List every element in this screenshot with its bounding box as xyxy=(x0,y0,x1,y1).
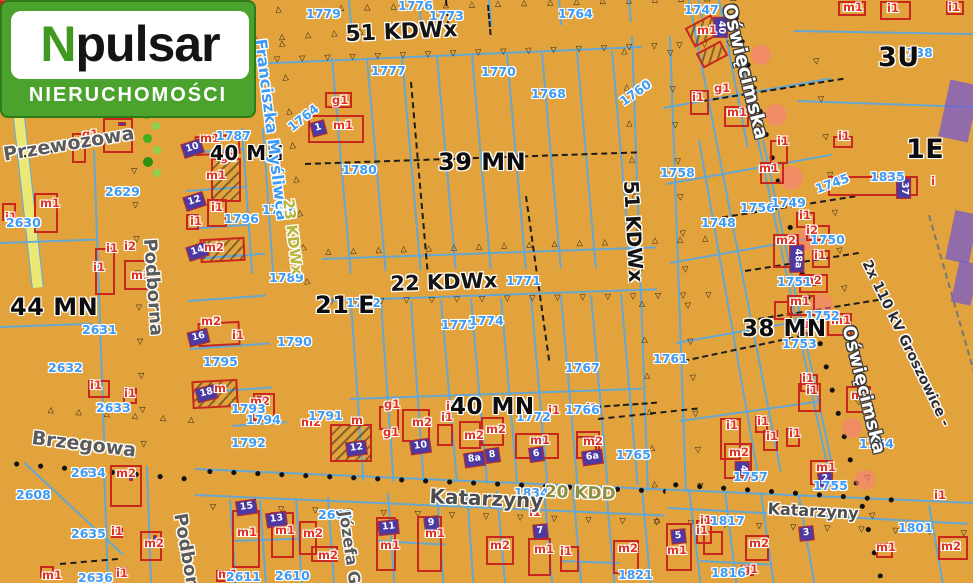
parcel-number-label: 2630 xyxy=(6,217,41,230)
building-type-label: i1 xyxy=(934,490,946,502)
parcel-number-label: 1768 xyxy=(531,88,566,101)
building-type-label: m2 xyxy=(583,436,603,448)
tree-icon xyxy=(143,157,153,167)
parcel-number-label: 1747 xyxy=(684,4,719,17)
building-type-label: i1 xyxy=(838,131,850,143)
building-type-label: m2 xyxy=(201,316,221,328)
house-number-chip: 8 xyxy=(484,447,501,464)
parcel-number-label: 2632 xyxy=(48,362,83,375)
street-name-label: Podborna xyxy=(170,512,205,583)
parcel-number-label: 1821 xyxy=(618,569,653,582)
parcel-number-label: 1751 xyxy=(777,276,812,289)
zone-dashed-line xyxy=(60,558,118,565)
building-type-label: i1 xyxy=(948,2,960,14)
tree-icon xyxy=(152,122,160,130)
building-type-label: m1 xyxy=(425,528,445,540)
zone-label: 40 MN xyxy=(450,396,535,419)
building-type-label: m2 xyxy=(303,528,323,540)
parcel-number-label: 1816 xyxy=(711,567,746,580)
parcel-number-label: 2633 xyxy=(96,402,131,415)
tree-icon xyxy=(143,134,152,143)
building-type-label: g1 xyxy=(384,399,400,411)
building-type-label: m1 xyxy=(697,25,717,37)
parcel-number-label: 2634 xyxy=(71,467,106,480)
building-type-label: g1 xyxy=(714,83,730,95)
building-type-label: m1 xyxy=(275,525,295,537)
logo-wordmark: Npulsar xyxy=(11,11,249,79)
building-type-label: m xyxy=(214,383,226,395)
street-name-label: 51 KDWx xyxy=(621,180,646,283)
parcel-number-label: 2635 xyxy=(71,528,106,541)
parcel-number-label: 1756 xyxy=(740,202,775,215)
parcel-number-label: 2611 xyxy=(226,571,261,583)
building-type-label: m2 xyxy=(729,447,749,459)
zone-label: 39 MN xyxy=(438,150,526,174)
parcel-number-label: 1764 xyxy=(558,8,593,21)
parcel-boundary-line xyxy=(794,30,973,35)
parcel-number-label: 1790 xyxy=(277,336,312,349)
house-number-chip: 8a xyxy=(463,451,486,469)
building-type-label: m1 xyxy=(816,462,836,474)
parcel-boundary-line xyxy=(0,323,92,328)
building-type-label: m1 xyxy=(759,163,779,175)
parcel-boundary-line xyxy=(380,302,394,482)
building-outline xyxy=(232,510,260,568)
building-type-label: m1 xyxy=(843,2,863,14)
building-type-label: m2 xyxy=(749,538,769,550)
building-type-label: m1 xyxy=(206,170,226,182)
building-type-label: m2 xyxy=(144,538,164,550)
street-name-label: Józefa Gr xyxy=(336,510,363,583)
building-type-label: i1 xyxy=(116,568,128,580)
parcel-number-label: 1748 xyxy=(701,217,736,230)
parcel-number-label: 1774 xyxy=(469,315,504,328)
parcel-number-label: 1776 xyxy=(398,0,433,13)
zone-label: 44 MN xyxy=(10,295,98,319)
house-number-chip: 6 xyxy=(528,446,545,463)
house-number-chip: 48a xyxy=(789,245,804,273)
building-type-label: i1 xyxy=(726,420,738,432)
building-type-label: i1 xyxy=(789,428,801,440)
building-type-label: i1 xyxy=(806,385,818,397)
parcel-number-label: 1779 xyxy=(306,8,341,21)
building-type-label: i1 xyxy=(757,416,769,428)
parcel-number-label: 1761 xyxy=(653,353,688,366)
building-type-label: i1 xyxy=(90,380,102,392)
building-type-label: m2 xyxy=(464,430,484,442)
parcel-number-label: 1780 xyxy=(342,164,377,177)
street-name-label: Brzegowa xyxy=(31,429,137,461)
parcel-number-label: 1758 xyxy=(660,167,695,180)
road-marker-dot xyxy=(842,418,862,438)
parcel-boundary-line xyxy=(146,466,152,583)
building-type-label: m2 xyxy=(490,540,510,552)
house-number-chip: 11 xyxy=(377,519,400,536)
building-type-label: i xyxy=(931,176,935,188)
house-number-chip: 7 xyxy=(532,523,548,539)
parcel-number-label: 1801 xyxy=(898,522,933,535)
building-type-label: m1 xyxy=(42,570,62,582)
building-type-label: m1 xyxy=(40,198,60,210)
building-type-label: i1 xyxy=(93,262,105,274)
logo: Npulsar NIERUCHOMOŚCI xyxy=(0,0,256,118)
parcel-number-label: 1777 xyxy=(371,65,406,78)
house-number-chip: 12 xyxy=(345,440,368,458)
building-type-label: m xyxy=(351,415,363,427)
parcel-number-label: 2636 xyxy=(78,572,113,583)
building-type-label: m1 xyxy=(790,296,810,308)
parcel-number-label: 1795 xyxy=(203,356,238,369)
zone-label: 21 E xyxy=(315,293,375,317)
building-type-label: m1 xyxy=(876,542,896,554)
building-type-label: m2 xyxy=(204,242,224,254)
parcel-number-label: 1757 xyxy=(733,471,768,484)
street-name-label: 22 KDWx xyxy=(390,270,498,295)
street-name-label: Przewozowa xyxy=(2,124,136,165)
building-type-label: m2 xyxy=(486,424,506,436)
house-number-chip: 3 xyxy=(798,525,814,541)
building-type-label: i1 xyxy=(799,210,811,222)
infrastructure-patch xyxy=(945,210,973,264)
infrastructure-patch xyxy=(951,260,973,305)
building-type-label: m1 xyxy=(667,545,687,557)
building-type-label: i1 xyxy=(111,526,123,538)
building-type-label: m2 xyxy=(941,541,961,553)
boundary-triangle-strip: ▽▽▽▽▽▽▽▽▽▽▽▽▽▽▽▽ xyxy=(328,291,731,306)
house-number-chip: 12 xyxy=(182,191,207,212)
parcel-number-label: 1796 xyxy=(224,213,259,226)
parcel-number-label: 1794 xyxy=(246,414,281,427)
zoning-map[interactable]: △△△△△△△△△△△△△△△△△△△△△△△△△△△△△△▽▽▽▽▽▽▽▽▽▽… xyxy=(0,0,973,583)
street-name-label: Katarzyny xyxy=(767,501,859,522)
parcel-number-label: 1767 xyxy=(565,362,600,375)
parcel-boundary-line xyxy=(410,301,424,483)
boundary-triangle-strip: △△△△△△ xyxy=(47,406,216,426)
building-type-label: m1 xyxy=(333,120,353,132)
parcel-number-label: 1755 xyxy=(813,480,848,493)
logo-subtitle: NIERUCHOMOŚCI xyxy=(2,84,254,107)
boundary-triangle-strip: △△△△△△△△△△△△△△△△ xyxy=(325,234,727,256)
house-number-chip: 6a xyxy=(581,449,604,467)
building-type-label: m2 xyxy=(776,235,796,247)
building-type-label: i1 xyxy=(814,250,826,262)
parcel-number-label: 2629 xyxy=(105,186,140,199)
street-name-label: Katarzyny xyxy=(429,486,544,511)
building-outline xyxy=(437,424,453,446)
zone-label: 3U xyxy=(878,44,920,71)
building-type-label: i1 xyxy=(232,330,244,342)
parcel-number-label: 1817 xyxy=(710,515,745,528)
building-type-label: i1 xyxy=(560,546,572,558)
building-type-label: m2 xyxy=(412,417,432,429)
parcel-number-label: 1766 xyxy=(565,404,600,417)
parcel-number-label: 1750 xyxy=(810,234,845,247)
building-type-label: g1 xyxy=(332,95,348,107)
building-type-label: m2 xyxy=(618,543,638,555)
building-type-label: i1 xyxy=(124,388,136,400)
road-marker-dot xyxy=(855,470,875,490)
zone-label: 1E xyxy=(906,136,944,163)
building-type-label: i1 xyxy=(887,3,899,15)
logo-letter-n: N xyxy=(40,16,75,72)
building-type-label: m1 xyxy=(237,527,257,539)
house-number-chip: 10 xyxy=(409,438,432,456)
building-type-label: i1 xyxy=(190,216,202,228)
street-name-label: 20 KDD xyxy=(544,484,616,503)
house-number-chip: 15 xyxy=(235,499,258,517)
zone-label: 38 MN xyxy=(742,318,827,341)
building-type-label: g1 xyxy=(383,427,399,439)
parcel-number-label: 1792 xyxy=(231,437,266,450)
building-type-label: m2 xyxy=(116,468,136,480)
parcel-number-label: 1791 xyxy=(308,410,343,423)
parcel-number-label: 2608 xyxy=(16,489,51,502)
building-type-label: m2 xyxy=(318,550,338,562)
building-type-label: i1 xyxy=(692,92,704,104)
building-type-label: i1 xyxy=(766,431,778,443)
street-name-label: 51 KDWx xyxy=(345,19,458,46)
parcel-number-label: 1771 xyxy=(506,275,541,288)
parcel-number-label: 2631 xyxy=(82,324,117,337)
boundary-triangle-strip: ▷▷▷▷▷▷▷▷▷▷▷▷▷▷ xyxy=(666,50,709,555)
building-type-label: m1 xyxy=(530,435,550,447)
parcel-number-label: 2610 xyxy=(275,570,310,583)
parcel-boundary-line xyxy=(0,239,95,244)
parcel-number-label: 1835 xyxy=(870,171,905,184)
tree-icon xyxy=(153,169,161,177)
building-type-label: m1 xyxy=(534,544,554,556)
parcel-number-label: 1770 xyxy=(481,66,516,79)
building-type-label: i1 xyxy=(802,373,814,385)
parcel-number-label: 1765 xyxy=(616,449,651,462)
building-type-label: i1 xyxy=(211,202,223,214)
building-type-label: i2 xyxy=(124,241,136,253)
building-type-label: i1 xyxy=(777,136,789,148)
parcel-number-label: 1749 xyxy=(771,197,806,210)
tree-icon xyxy=(153,146,161,154)
parcel-boundary-line xyxy=(188,295,266,302)
logo-rest: pulsar xyxy=(76,16,220,72)
parcel-boundary-line xyxy=(576,52,597,268)
building-type-label: m1 xyxy=(380,540,400,552)
building-type-label: i1 xyxy=(106,243,118,255)
